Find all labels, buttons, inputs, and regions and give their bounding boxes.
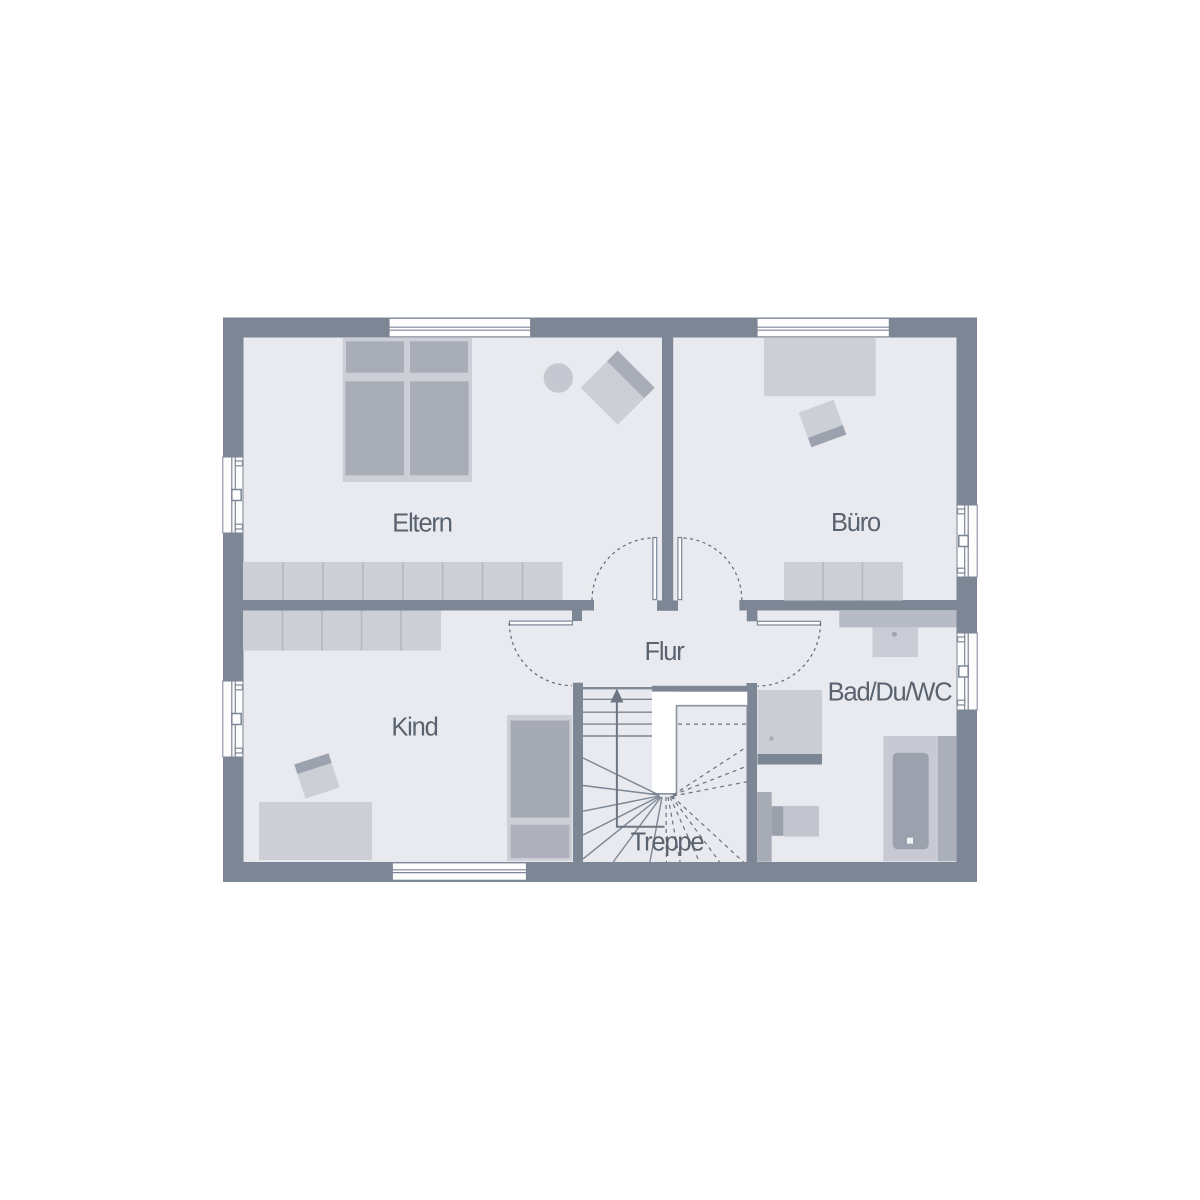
svg-text:Büro: Büro — [831, 509, 881, 537]
svg-text:Eltern: Eltern — [392, 510, 451, 538]
svg-text:Treppe: Treppe — [631, 829, 705, 857]
svg-text:Kind: Kind — [391, 714, 437, 742]
svg-text:Flur: Flur — [644, 638, 685, 666]
svg-text:Bad/Du/WC: Bad/Du/WC — [828, 678, 953, 706]
